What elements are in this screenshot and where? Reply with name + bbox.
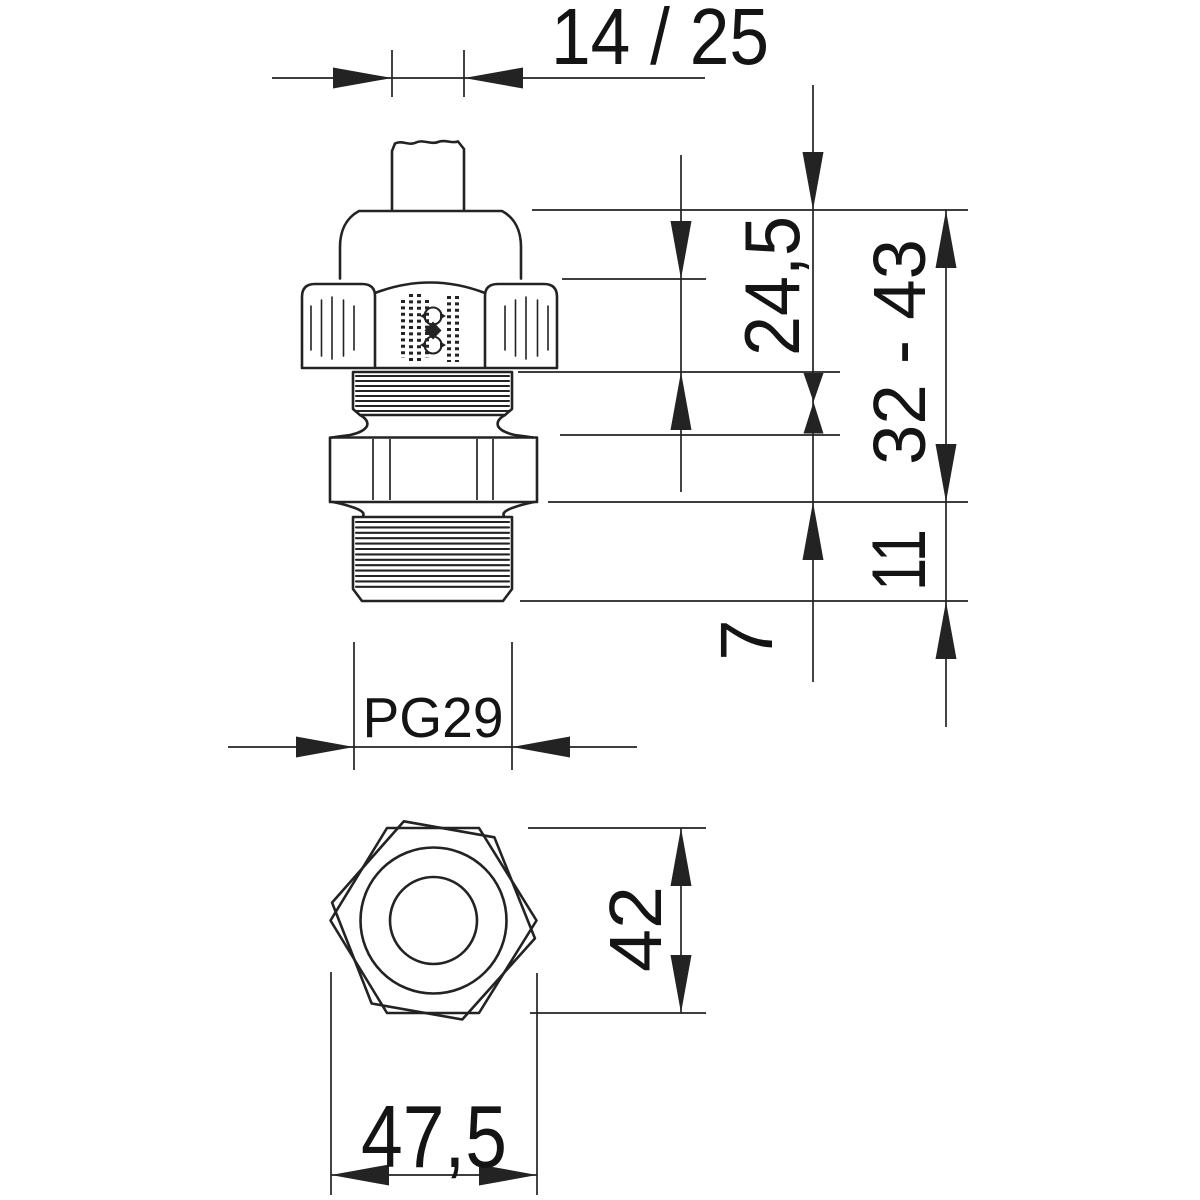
upper-thread-lines <box>356 376 509 411</box>
cap-dome-outline <box>340 211 521 279</box>
dim-label-width-across-flats: 42 <box>594 886 677 972</box>
hex-outline-rotated <box>316 812 551 1030</box>
lower-neck-outline <box>333 502 534 516</box>
dim-label-cable-range: 14 / 25 <box>551 0 769 81</box>
cable-stub-outline <box>392 141 464 210</box>
dim-label-overall-height-range: 32 - 43 <box>858 239 941 465</box>
dim-label-width-across-corners: 47,5 <box>361 1087 507 1186</box>
technical-drawing: 14 / 25 24,5 32 - 43 11 7 PG29 42 47,5 <box>0 0 1200 1200</box>
side-view <box>302 141 557 601</box>
dim-label-thread-size: PG29 <box>363 686 504 750</box>
cable-hole-circle <box>390 877 477 964</box>
upper-thread-outline <box>353 372 512 415</box>
upper-neck-outline <box>332 415 533 438</box>
brand-logo-mark <box>420 308 446 354</box>
bottom-view <box>316 812 551 1030</box>
gland-body-circle <box>361 848 507 994</box>
logo-diamond <box>425 322 442 340</box>
dimension-arrowheads <box>296 68 957 1186</box>
lower-thread-lines <box>356 522 509 587</box>
middle-hex-outline <box>330 438 537 503</box>
dimension-labels: 14 / 25 24,5 32 - 43 11 7 PG29 42 47,5 <box>361 0 942 1186</box>
dim-label-hex-height: 7 <box>705 619 788 660</box>
dim-label-thread-length: 11 <box>857 529 942 591</box>
drawing-canvas: 14 / 25 24,5 32 - 43 11 7 PG29 42 47,5 <box>0 0 1200 1200</box>
dimension-line-paths <box>228 50 946 1195</box>
dim-label-cap-section-height: 24,5 <box>728 216 816 356</box>
dimension-lines <box>228 50 968 1195</box>
middle-hex-face-edges <box>373 439 493 500</box>
